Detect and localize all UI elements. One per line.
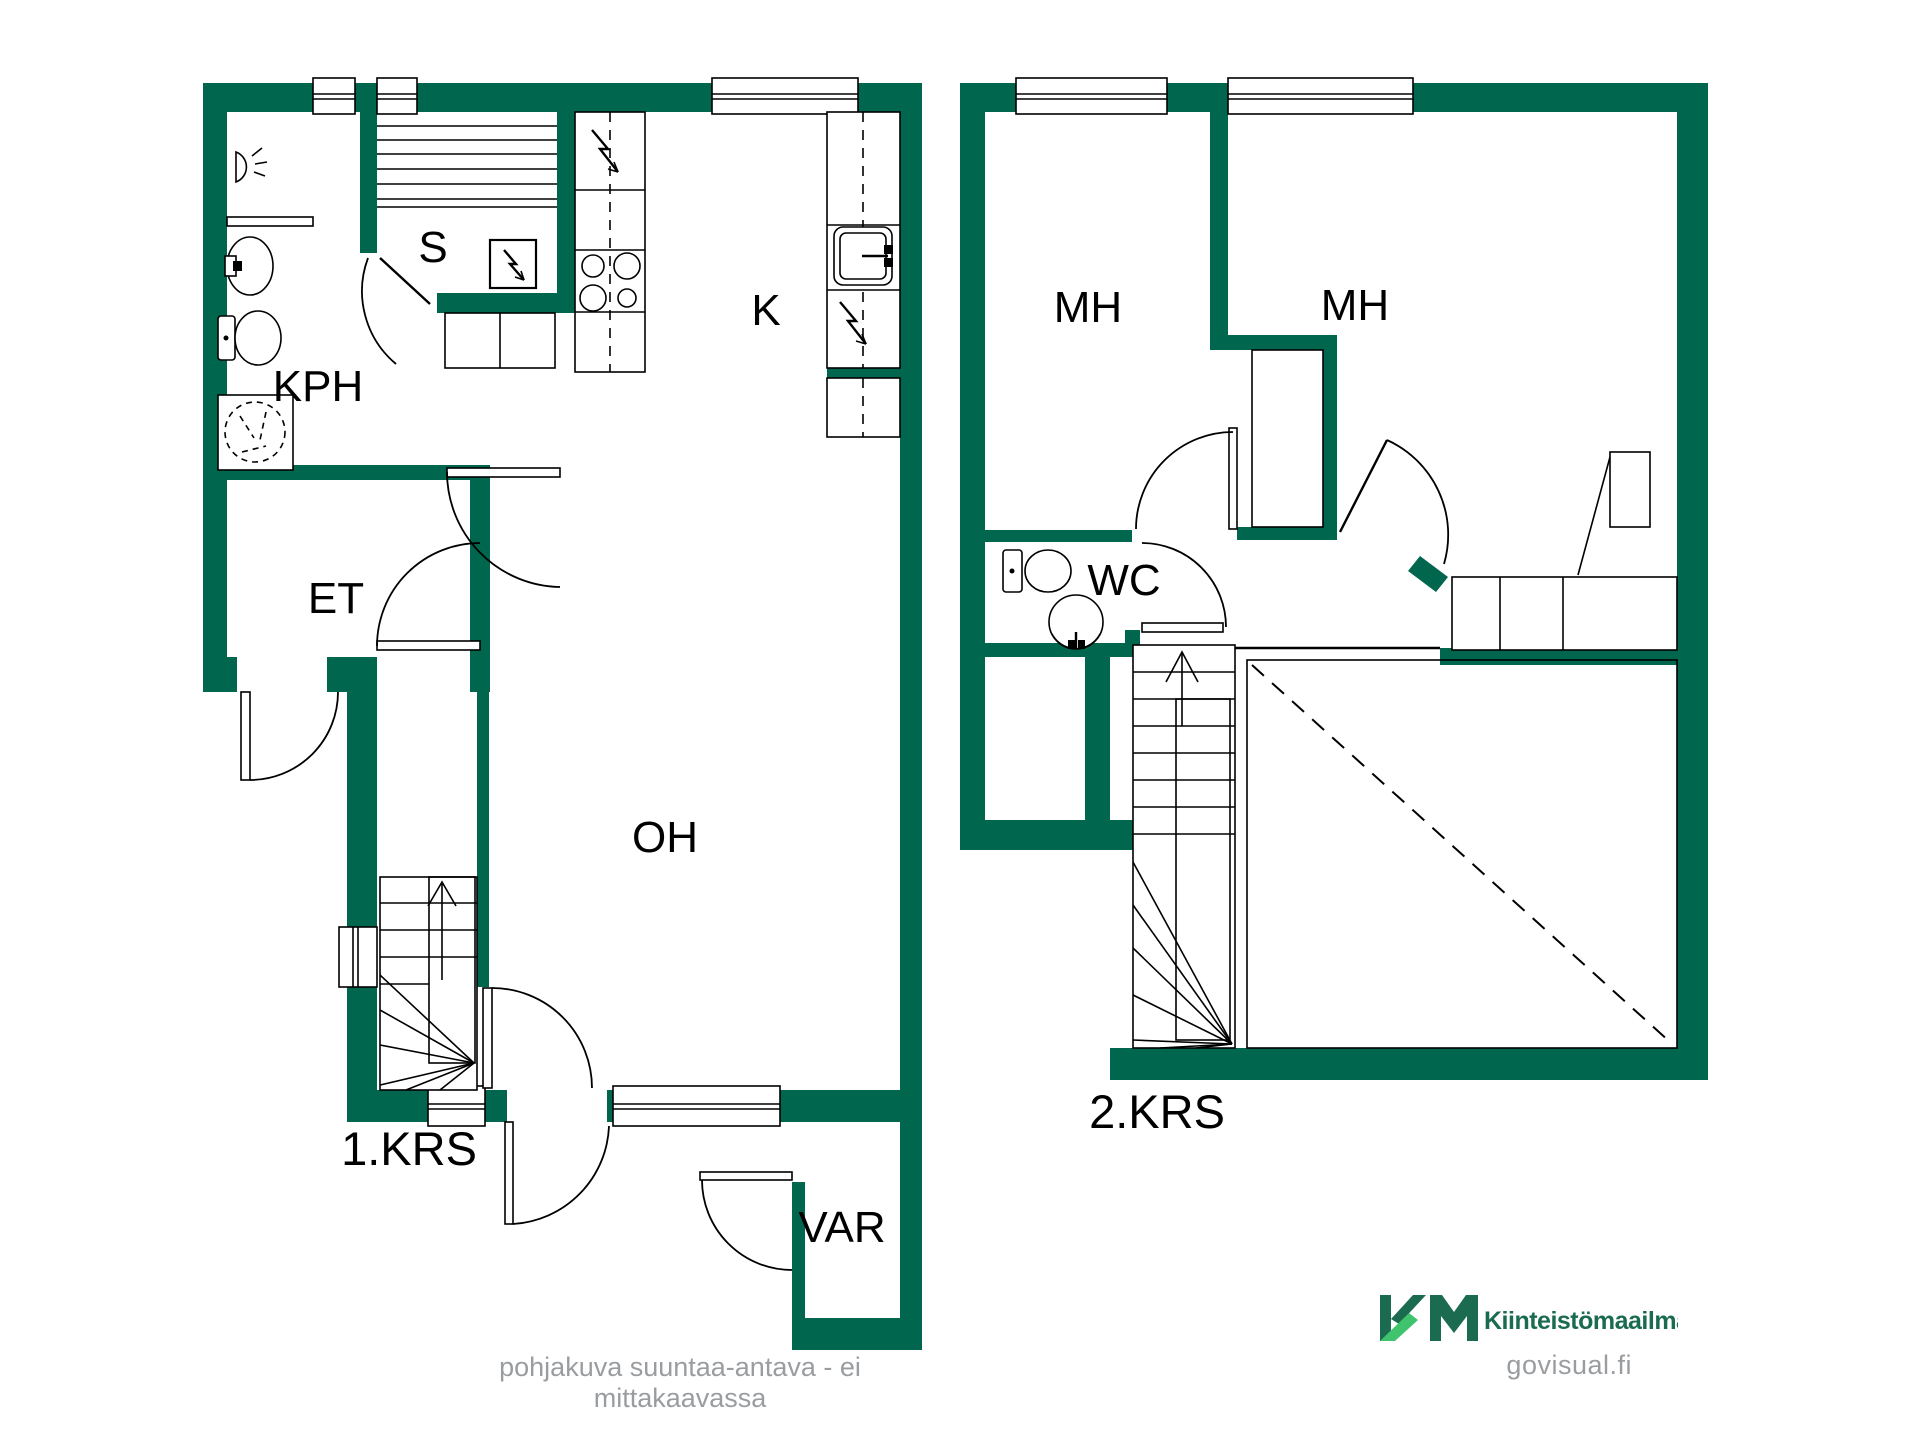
storage-door <box>700 1172 792 1270</box>
window <box>313 78 355 114</box>
floorplan-drawing: KPH S K ET OH VAR MH MH WC 1.KRS 2.KRS <box>0 0 1920 1440</box>
hall-door <box>377 543 480 650</box>
sauna-benches <box>377 126 557 207</box>
room-label-hall: ET <box>308 574 364 623</box>
brand-logo: Kiinteistömaailma <box>1378 1292 1678 1346</box>
km-logo-icon <box>1380 1295 1478 1341</box>
room-label-kph: KPH <box>273 362 363 411</box>
closet <box>1252 350 1323 527</box>
window <box>712 78 858 114</box>
window <box>377 78 417 114</box>
window <box>1016 78 1167 114</box>
floor2-plan <box>960 78 1708 1080</box>
floor1-walls <box>203 83 922 1350</box>
room-label-wc: WC <box>1087 556 1160 605</box>
wardrobe-row <box>1452 452 1677 650</box>
bedroom-left-door <box>1136 428 1237 529</box>
kitchen-cabinet <box>445 313 555 368</box>
stair-door <box>483 988 592 1088</box>
window <box>339 927 377 987</box>
room-label-kitchen: K <box>751 286 780 335</box>
sink-icon <box>225 237 273 295</box>
front-door <box>241 692 338 780</box>
watermark-text: govisual.fi <box>1452 1350 1632 1381</box>
terrace-door <box>505 1122 609 1224</box>
window <box>613 1086 780 1126</box>
sauna-door <box>362 258 430 364</box>
toilet-icon <box>218 311 281 365</box>
room-label-sauna: S <box>418 223 447 272</box>
window <box>428 1086 485 1126</box>
lamp-icon <box>236 148 267 182</box>
window <box>1228 78 1413 114</box>
room-label-bedroom1: MH <box>1054 283 1122 332</box>
floor1-stairs <box>380 877 477 1090</box>
floor2-label: 2.KRS <box>1089 1085 1225 1138</box>
brand-name: Kiinteistömaailma <box>1484 1307 1678 1335</box>
bedroom-right-door <box>1340 440 1448 564</box>
room-label-storage: VAR <box>798 1203 885 1252</box>
toilet-icon <box>1003 550 1071 592</box>
floor2-stairs <box>1133 645 1235 1048</box>
bathroom-lobby-door <box>447 468 560 587</box>
floor1-label: 1.KRS <box>341 1122 477 1175</box>
kitchen-sink-icon <box>834 227 893 285</box>
shelf <box>227 217 313 226</box>
floorplan-canvas: KPH S K ET OH VAR MH MH WC 1.KRS 2.KRS p… <box>0 0 1920 1440</box>
sauna-heater-icon <box>490 240 536 288</box>
floor1-plan <box>203 78 922 1350</box>
room-label-living: OH <box>632 813 698 862</box>
kitchen-counter-right <box>827 112 900 437</box>
disclaimer-text: pohjakuva suuntaa-antava - ei mittakaava… <box>420 1352 940 1414</box>
room-label-bedroom2: MH <box>1321 281 1389 330</box>
floor1-bathroom-fixtures <box>218 148 313 470</box>
kitchen-counter-left <box>575 112 645 372</box>
